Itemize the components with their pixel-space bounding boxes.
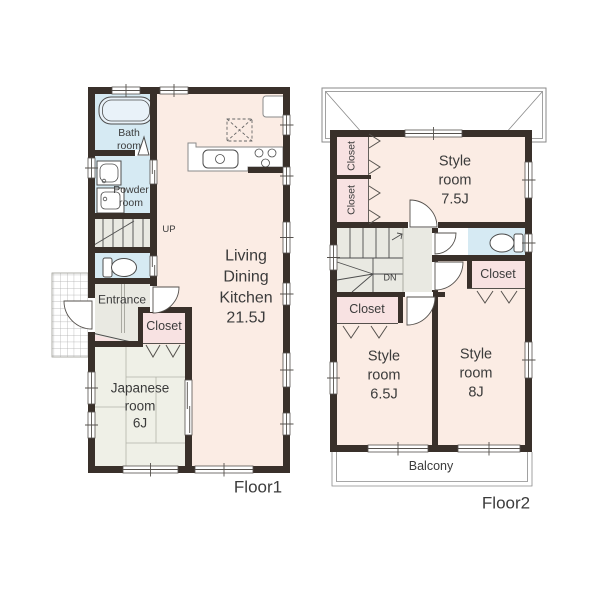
japanese-room-sliding-door [185, 380, 192, 435]
closet-left-label: Closet [349, 302, 384, 318]
powder-room-label: Powder room [113, 184, 149, 210]
style-room-65-label: Style room 6.5J [367, 348, 400, 405]
stairs-down-label: DN [384, 272, 397, 283]
ldk-label: Living Dining Kitchen 21.5J [219, 246, 272, 329]
floor-plan-page: Bath room Powder room UP Entrance Closet… [0, 0, 600, 600]
bath-room-label: Bath room [117, 127, 141, 153]
toilet-sliding-door-floor1 [150, 256, 157, 276]
style-room-75-label: Style room 7.5J [438, 153, 471, 210]
kitchen-sink [203, 150, 238, 168]
stairs-up-label: UP [162, 224, 175, 236]
style-room-8-label: Style room 8J [459, 346, 492, 403]
entrance-label: Entrance [98, 293, 146, 308]
toilet-fixture-floor2 [490, 234, 523, 252]
closet-label-floor1: Closet [146, 319, 181, 335]
washing-machine [97, 161, 121, 185]
powder-room-sliding-door [150, 160, 157, 184]
floor1-title: Floor1 [234, 476, 282, 497]
closet-right-label: Closet [480, 267, 515, 283]
floor2-title: Floor2 [482, 492, 530, 513]
closet-top1-label: Closet [345, 141, 358, 171]
toilet-fixture-floor1 [103, 258, 137, 277]
japanese-room-label: Japanese room 6J [111, 380, 170, 433]
bathtub [99, 97, 153, 124]
stairs-fill-floor1 [92, 214, 150, 250]
closet-top2-label: Closet [345, 185, 358, 215]
balcony-label: Balcony [409, 459, 453, 475]
